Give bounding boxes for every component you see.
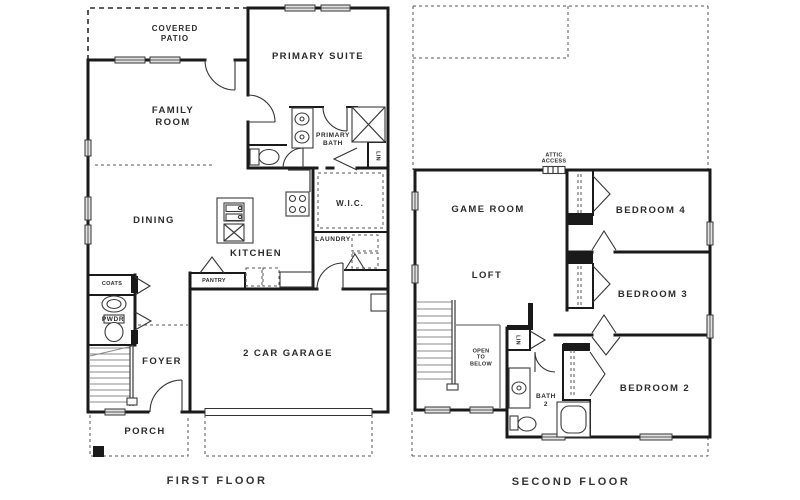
porch-column [93, 446, 104, 457]
room-label-open-to-below: OPEN TO BELOW [470, 349, 492, 368]
room-label-powder: PWDR [102, 316, 124, 324]
room-label-primary-suite: PRIMARY SUITE [272, 51, 364, 63]
floorplan-linework [0, 0, 800, 500]
second-floor-caption: SECOND FLOOR [512, 476, 631, 488]
room-label-bedroom-3: BEDROOM 3 [618, 289, 688, 301]
first-floor-caption: FIRST FLOOR [167, 475, 268, 487]
toilet-bowl [259, 150, 279, 165]
room-label-linen-2: LIN [514, 335, 521, 345]
cooktop [286, 170, 310, 216]
attic-access-hatch [543, 167, 565, 174]
toilet-bowl [518, 417, 536, 431]
wall-chunk [567, 213, 593, 225]
room-label-coats: COATS [102, 281, 122, 287]
floorplan-sheet: COVERED PATIO PRIMARY SUITE FAMILY ROOM … [0, 0, 800, 500]
washer-dryer [352, 235, 378, 268]
room-label-wic: W.I.C. [336, 199, 364, 209]
first-floor-plan [85, 5, 388, 457]
room-label-porch: PORCH [124, 426, 165, 438]
room-label-loft: LOFT [472, 270, 502, 282]
wall-chunk [563, 343, 590, 351]
tub-basin [561, 406, 586, 433]
kitchen-counter [246, 268, 312, 287]
first-floor-stairs [90, 345, 137, 406]
wall-chunk [567, 252, 593, 264]
water-heater [371, 294, 387, 311]
room-label-attic-access: ATTIC ACCESS [542, 153, 567, 166]
room-label-kitchen: KITCHEN [230, 248, 282, 260]
room-label-bedroom-4: BEDROOM 4 [616, 205, 686, 217]
wall-chunk [507, 325, 533, 330]
room-label-bedroom-2: BEDROOM 2 [620, 383, 690, 395]
room-label-linen-1: LIN [374, 151, 381, 161]
room-label-family-room: FAMILY ROOM [152, 105, 194, 129]
toilet-tank [510, 416, 518, 430]
kitchen-island [217, 198, 253, 243]
garage-door [205, 409, 372, 416]
driveway-outline [205, 415, 372, 456]
room-label-covered-patio: COVERED PATIO [152, 24, 199, 44]
second-floor-doors [530, 176, 620, 396]
room-label-garage: 2 CAR GARAGE [243, 348, 333, 360]
room-label-primary-bath: PRIMARY BATH [316, 132, 350, 148]
room-label-bath-2: BATH 2 [536, 393, 556, 409]
closet-rods [571, 174, 581, 396]
room-label-dining: DINING [133, 215, 175, 227]
room-label-laundry: LAUNDRY [315, 236, 351, 244]
room-label-foyer: FOYER [142, 356, 182, 368]
toilet-tank [250, 149, 259, 165]
wall-chunk [131, 330, 138, 344]
room-label-pantry: PANTRY [202, 278, 226, 284]
room-label-game-room: GAME ROOM [451, 204, 524, 216]
